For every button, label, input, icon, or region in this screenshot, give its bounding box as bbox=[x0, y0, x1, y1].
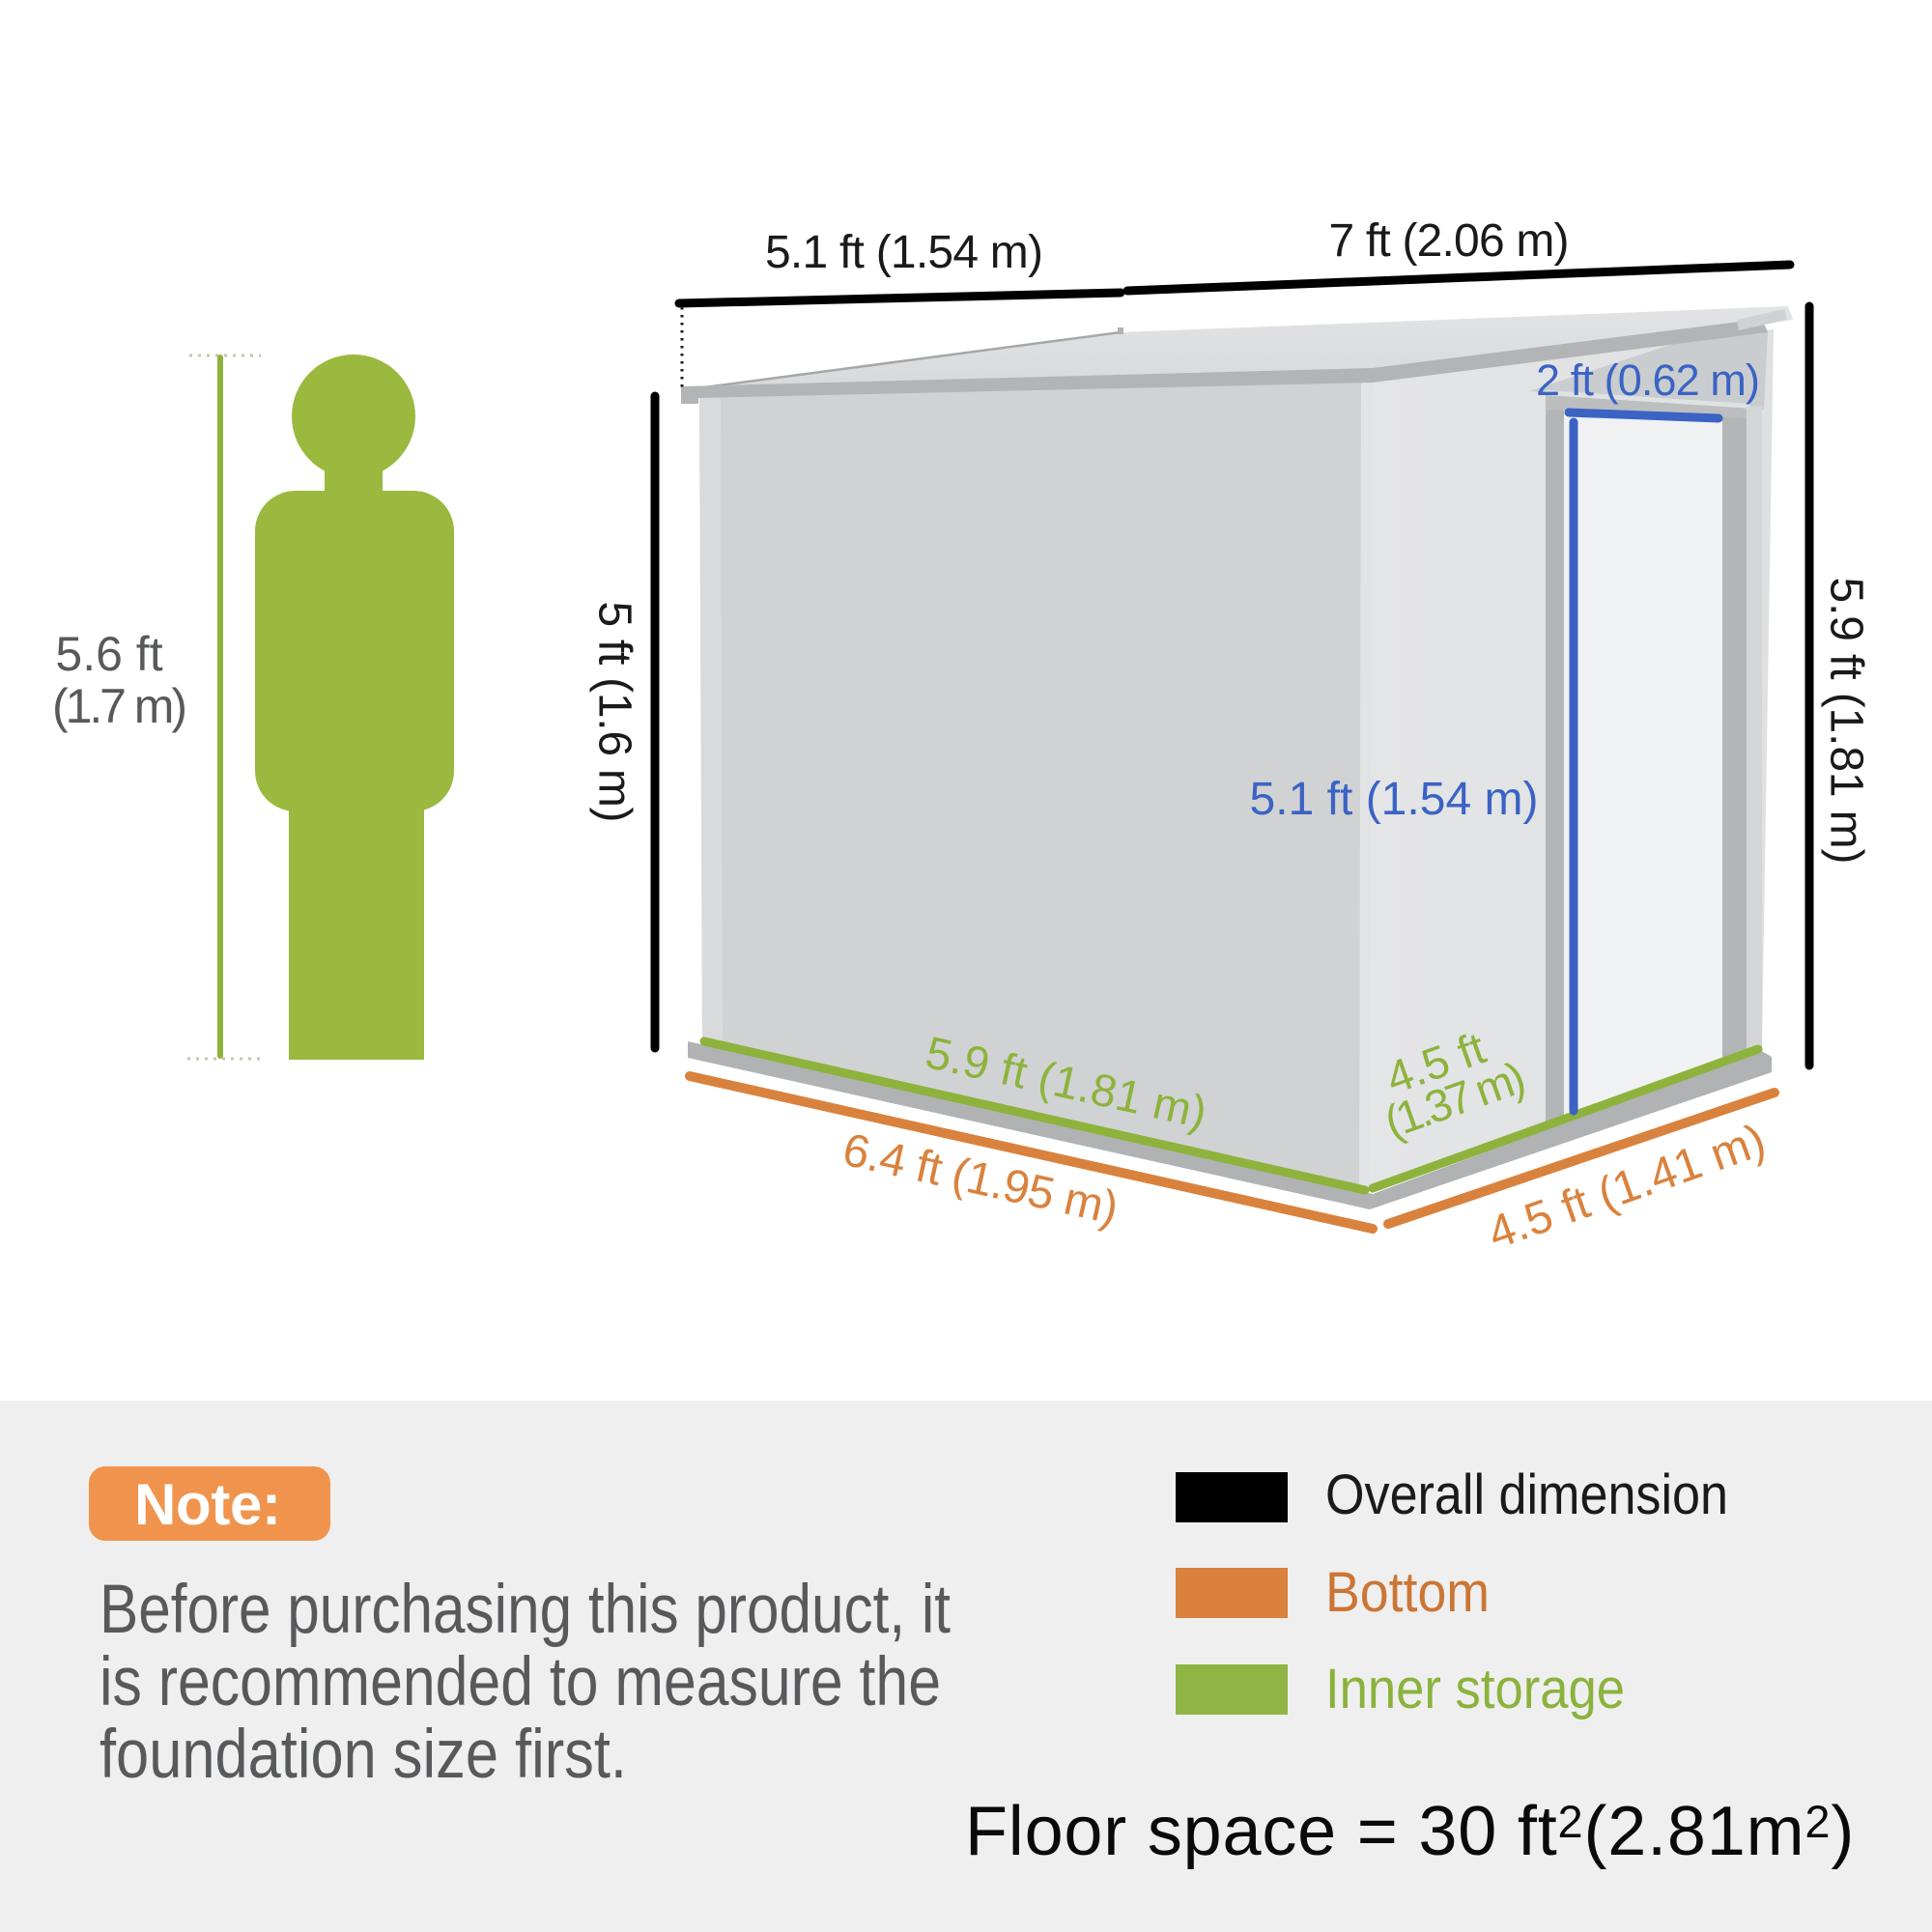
svg-text:is recommended to measure the: is recommended to measure the bbox=[99, 1644, 941, 1720]
svg-text:5.6 ft: 5.6 ft bbox=[55, 627, 162, 681]
svg-text:5 ft (1.6 m): 5 ft (1.6 m) bbox=[589, 602, 640, 823]
svg-text:5.1 ft (1.54 m): 5.1 ft (1.54 m) bbox=[1250, 774, 1539, 825]
svg-text:Note:: Note: bbox=[134, 1472, 281, 1537]
svg-text:(1.7 m): (1.7 m) bbox=[52, 679, 187, 733]
svg-text:2 ft (0.62 m): 2 ft (0.62 m) bbox=[1536, 355, 1760, 405]
svg-text:foundation size first.: foundation size first. bbox=[99, 1717, 627, 1793]
svg-text:Before purchasing this product: Before purchasing this product, it bbox=[99, 1572, 951, 1648]
svg-text:Floor space = 30 ft2(2.81m2): Floor space = 30 ft2(2.81m2) bbox=[965, 1793, 1855, 1870]
svg-text:Overall dimension: Overall dimension bbox=[1325, 1463, 1728, 1526]
svg-text:5.1 ft (1.54 m): 5.1 ft (1.54 m) bbox=[765, 227, 1043, 278]
svg-text:7 ft (2.06 m): 7 ft (2.06 m) bbox=[1329, 215, 1570, 267]
svg-text:Inner storage: Inner storage bbox=[1325, 1658, 1625, 1720]
svg-text:Bottom: Bottom bbox=[1325, 1561, 1490, 1624]
svg-text:5.9 ft (1.81 m): 5.9 ft (1.81 m) bbox=[1821, 578, 1872, 865]
